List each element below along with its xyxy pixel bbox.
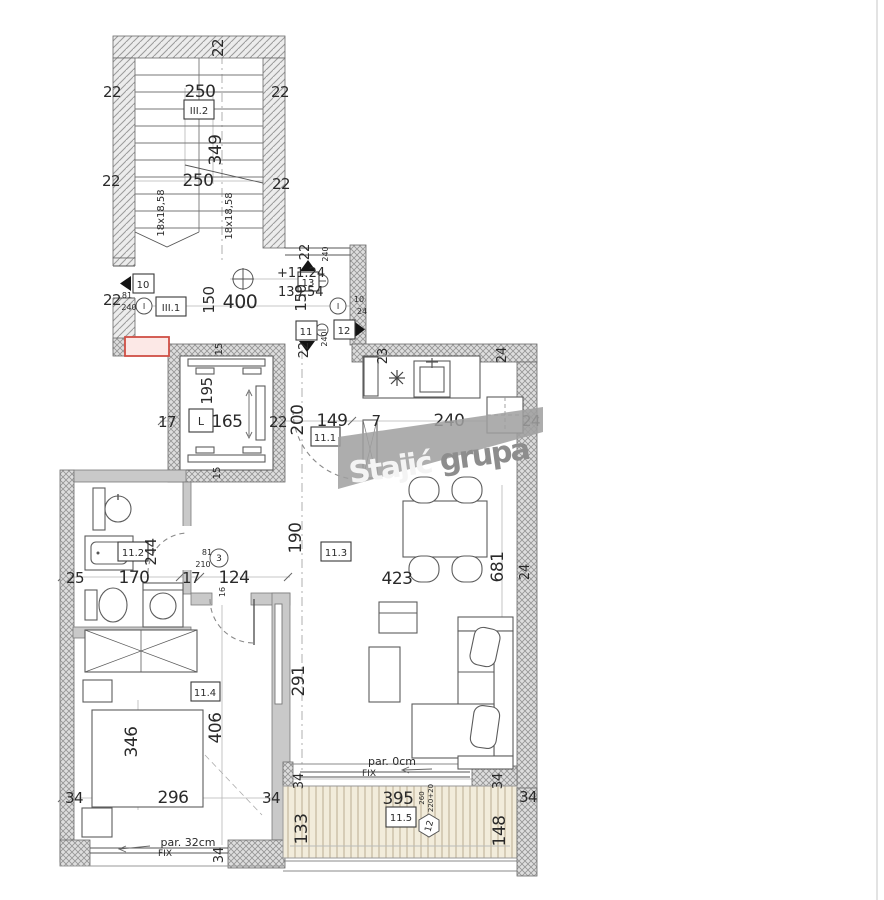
dim-ax-bottom-240: 240 (320, 331, 329, 346)
dim-elevator-195: 195 (198, 377, 216, 404)
dim-bedroom-406: 406 (206, 713, 226, 744)
nightstand (83, 680, 112, 702)
dim-terrace-148: 148 (490, 816, 510, 847)
dim-terrace-glass-220: 220+20 (427, 784, 435, 812)
sofa-armrest-bottom (458, 756, 513, 769)
dim-hall-wall-left: 22 (103, 291, 121, 309)
dim-kitchen-wall-23: 23 (376, 348, 391, 365)
dim-hall-7: 7 (371, 412, 380, 430)
dim-terrace-395: 395 (383, 789, 414, 809)
bath-radiator (93, 488, 105, 530)
living-window-parapet: par. 0cm (368, 755, 416, 768)
dim-stair-wall-l1: 22 (103, 83, 121, 101)
dim-elevator-15-bottom: 15 (212, 467, 223, 480)
dim-ax-bottom-22: 22 (297, 342, 312, 359)
dim-stair-width-1: 250 (185, 82, 216, 102)
floor-plan-page: III.2 III.1 L 11.1 11.2 11.3 11.4 11.5 1… (0, 0, 884, 900)
bedroom-window-parapet: par. 32cm (161, 836, 216, 849)
dim-stair-top-wall: 22 (209, 39, 227, 57)
coffee-table (369, 647, 400, 702)
tag-door-11: 11 (300, 327, 313, 338)
tag-terrace: 11.5 (390, 813, 412, 824)
sofa-pillow-2 (469, 704, 501, 749)
tag-living: 11.3 (325, 548, 347, 559)
dim-hall-149: 149 (317, 411, 348, 431)
bedroom-wall-left (191, 593, 212, 605)
dim-hall-op-right: 150 (292, 284, 310, 311)
dim-ax-top-22: 22 (298, 244, 313, 261)
dim-hall-length: 400 (223, 291, 258, 313)
bath-door-opening (182, 526, 192, 570)
dim-small-24: 24 (357, 307, 367, 316)
tag-bedroom: 11.4 (194, 688, 216, 699)
tag-stair-lower: III.1 (162, 303, 180, 314)
dim-door10-width: 81 (122, 291, 132, 300)
dim-elevator-15-top: 15 (214, 343, 225, 356)
dining-table (403, 501, 487, 557)
dim-hall-op-left: 150 (200, 286, 218, 313)
elevator-door (256, 386, 265, 440)
dim-living-423: 423 (382, 569, 413, 589)
dim-elevator-165: 165 (212, 412, 243, 432)
highlighted-wall-segment (125, 337, 169, 356)
dim-stair-width-2: 250 (183, 171, 214, 191)
dim-bath-170: 170 (119, 568, 150, 588)
scan-edge-line (876, 0, 878, 900)
floor-plan-drawing: III.2 III.1 L 11.1 11.2 11.3 11.4 11.5 1… (0, 0, 884, 900)
dim-door10-height: 240 (121, 303, 136, 312)
dim-bath-25: 25 (66, 569, 84, 587)
dim-corridor-124: 124 (219, 568, 250, 588)
bedroom-window-pier-right (228, 840, 285, 868)
bedside-table (82, 808, 112, 837)
dim-bathdoor-210: 210 (195, 560, 210, 569)
dim-kitchen-wall-24: 24 (495, 347, 510, 364)
tag-door-10: 10 (137, 280, 150, 291)
tag-hall: 11.1 (314, 433, 336, 444)
dim-bottom-34a: 34 (65, 789, 83, 807)
dim-hall-200: 200 (288, 405, 308, 436)
stair-wall-top (113, 36, 285, 58)
dim-beddoor-16: 16 (218, 587, 227, 597)
living-window-fix: FIX (362, 769, 376, 779)
dining-chair (409, 556, 439, 582)
dim-bedroom-346: 346 (122, 727, 142, 758)
stair-run-label-2: 18x18,58 (224, 192, 235, 239)
dim-ax-top-240: 240 (321, 246, 330, 261)
tag-door-12: 12 (338, 326, 351, 337)
dim-living-681: 681 (488, 552, 508, 583)
dim-bedroom-296: 296 (158, 788, 189, 808)
axis-label-left: I (143, 302, 145, 311)
dim-terrace-133: 133 (292, 814, 312, 845)
sliding-door-panel (275, 604, 282, 704)
bedroom-window-fix: FIX (158, 849, 172, 859)
tv-stand (379, 602, 417, 633)
dim-stair-wall-r2: 22 (272, 175, 290, 193)
dim-stair-depth: 349 (206, 135, 226, 166)
dim-living-190: 190 (286, 523, 306, 554)
dim-bath-244: 244 (142, 538, 160, 565)
dim-bath-17: 17 (182, 569, 200, 587)
stove-symbol (389, 370, 405, 386)
dim-elevator-wall-17: 17 (158, 413, 176, 431)
stair-run-label-1: 18x18,58 (156, 189, 167, 236)
dining-chair (452, 556, 482, 582)
tag-elevator: L (198, 415, 205, 428)
toilet-bowl (99, 588, 127, 622)
bedroom-window-pier-left (60, 840, 90, 866)
dim-stair-wall-l2: 22 (102, 172, 120, 190)
dining-chair (452, 477, 482, 503)
dim-living-291: 291 (289, 666, 309, 697)
dim-bottom-34b: 34 (262, 789, 280, 807)
dim-terrace-glass-260: 260 (418, 791, 426, 804)
dim-rightwall-24: 24 (518, 564, 533, 581)
dim-stair-wall-r1: 22 (271, 83, 289, 101)
dim-bathdoor-81: 81 (202, 548, 212, 557)
dim-elevator-22: 22 (269, 413, 287, 431)
tag-stair-upper: III.2 (190, 106, 208, 117)
dim-terrace-34-left: 34 (292, 773, 307, 790)
axis-label-3: 3 (216, 554, 222, 564)
bath-top-wall (74, 470, 186, 482)
level-upper: +11.24 (277, 266, 325, 281)
bedroom-window-34: 34 (212, 847, 227, 864)
tag-bath: 11.2 (122, 548, 144, 559)
axis-label-right: I (337, 302, 339, 311)
dim-bottom-34c: 34 (519, 788, 537, 806)
toilet-tank (85, 590, 97, 620)
dim-small-10: 10 (354, 295, 364, 304)
dim-terrace-34-right: 34 (491, 773, 506, 790)
